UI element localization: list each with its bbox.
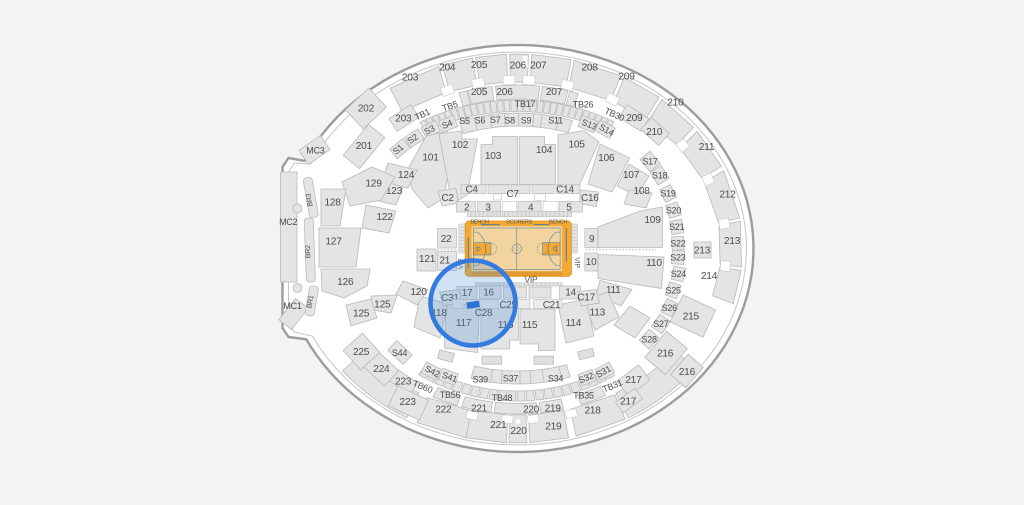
svg-text:S26: S26 <box>662 303 678 313</box>
svg-text:122: 122 <box>376 212 393 223</box>
svg-text:S24: S24 <box>671 269 687 279</box>
svg-text:207: 207 <box>546 87 563 98</box>
svg-text:14: 14 <box>565 287 576 298</box>
svg-text:TB35: TB35 <box>573 391 594 401</box>
svg-text:114: 114 <box>566 318 582 329</box>
svg-text:129: 129 <box>365 178 382 189</box>
svg-text:212: 212 <box>719 190 736 201</box>
svg-text:225: 225 <box>353 347 370 358</box>
svg-text:102: 102 <box>452 140 469 151</box>
svg-text:C21: C21 <box>543 300 561 311</box>
svg-text:S25: S25 <box>665 285 681 295</box>
svg-text:205: 205 <box>471 60 488 71</box>
svg-text:211: 211 <box>699 142 715 153</box>
svg-text:S17: S17 <box>642 157 658 167</box>
svg-text:S23: S23 <box>670 253 686 263</box>
svg-text:224: 224 <box>373 364 390 375</box>
svg-text:VIP: VIP <box>573 257 580 268</box>
svg-text:208: 208 <box>581 63 598 74</box>
svg-text:TB48: TB48 <box>492 393 513 403</box>
svg-text:110: 110 <box>646 258 662 269</box>
svg-text:217: 217 <box>620 396 637 407</box>
svg-text:108: 108 <box>633 186 650 197</box>
svg-text:C7: C7 <box>506 189 519 200</box>
svg-text:BENCH: BENCH <box>549 219 568 225</box>
svg-text:S7: S7 <box>490 115 501 125</box>
svg-text:S6: S6 <box>475 116 486 126</box>
svg-text:S19: S19 <box>660 189 676 199</box>
svg-text:S37: S37 <box>503 374 519 384</box>
svg-text:C4: C4 <box>465 184 478 195</box>
svg-text:MC2: MC2 <box>279 217 297 227</box>
svg-text:210: 210 <box>646 127 663 138</box>
svg-text:203: 203 <box>395 113 412 124</box>
svg-text:210: 210 <box>667 98 684 109</box>
svg-text:206: 206 <box>496 87 513 98</box>
svg-text:SCORERS: SCORERS <box>506 219 532 225</box>
svg-text:S8: S8 <box>504 116 515 126</box>
svg-text:109: 109 <box>644 215 661 226</box>
svg-text:115: 115 <box>522 320 538 331</box>
svg-text:S28: S28 <box>641 334 657 344</box>
svg-text:125: 125 <box>353 309 370 320</box>
svg-text:202: 202 <box>358 103 375 114</box>
svg-text:103: 103 <box>485 151 502 162</box>
svg-text:S21: S21 <box>669 222 685 232</box>
svg-text:S22: S22 <box>670 239 686 249</box>
svg-text:10: 10 <box>586 257 597 268</box>
svg-text:125: 125 <box>374 299 391 310</box>
svg-text:C14: C14 <box>556 184 574 195</box>
svg-text:S11: S11 <box>548 116 563 126</box>
svg-text:S39: S39 <box>473 375 489 385</box>
svg-text:220: 220 <box>510 426 527 437</box>
svg-text:TB17: TB17 <box>515 99 536 109</box>
svg-text:S27: S27 <box>653 319 669 329</box>
svg-text:TB26: TB26 <box>573 99 594 109</box>
svg-text:121: 121 <box>419 254 436 265</box>
svg-text:9: 9 <box>589 234 595 245</box>
svg-text:204: 204 <box>439 63 456 74</box>
svg-text:216: 216 <box>657 349 674 360</box>
svg-text:201: 201 <box>356 141 373 152</box>
svg-text:209: 209 <box>618 72 635 83</box>
svg-text:101: 101 <box>422 153 439 164</box>
svg-text:126: 126 <box>337 277 354 288</box>
svg-text:C2: C2 <box>441 193 454 204</box>
svg-text:128: 128 <box>324 197 341 208</box>
svg-text:127: 127 <box>325 236 342 247</box>
svg-text:220: 220 <box>523 404 540 415</box>
svg-text:C16: C16 <box>581 193 599 204</box>
svg-text:221: 221 <box>490 420 507 431</box>
svg-text:S18: S18 <box>652 170 668 180</box>
svg-text:BENCH: BENCH <box>470 219 489 225</box>
svg-text:209: 209 <box>626 113 643 124</box>
svg-text:207: 207 <box>530 61 547 72</box>
svg-text:TB56: TB56 <box>440 390 461 400</box>
svg-text:107: 107 <box>623 170 640 181</box>
svg-text:213: 213 <box>724 236 741 247</box>
svg-text:215: 215 <box>683 311 700 322</box>
svg-text:S20: S20 <box>666 205 682 215</box>
svg-text:BR2: BR2 <box>305 245 312 258</box>
svg-text:S44: S44 <box>392 348 408 358</box>
svg-text:105: 105 <box>568 140 585 151</box>
svg-text:214: 214 <box>701 271 718 282</box>
svg-text:223: 223 <box>399 397 416 408</box>
svg-text:218: 218 <box>585 405 602 416</box>
svg-text:219: 219 <box>545 422 562 433</box>
svg-text:221: 221 <box>471 404 488 415</box>
svg-text:S34: S34 <box>548 374 564 384</box>
svg-text:222: 222 <box>435 404 452 415</box>
svg-text:113: 113 <box>590 307 606 318</box>
svg-text:104: 104 <box>536 145 553 156</box>
svg-text:217: 217 <box>625 375 642 386</box>
svg-text:216: 216 <box>679 367 696 378</box>
svg-text:213: 213 <box>694 245 711 256</box>
svg-text:C17: C17 <box>577 293 595 304</box>
svg-text:MC3: MC3 <box>306 145 324 155</box>
svg-text:203: 203 <box>402 73 419 84</box>
svg-text:124: 124 <box>398 170 415 181</box>
svg-text:MC1: MC1 <box>283 301 301 311</box>
svg-text:S5: S5 <box>459 116 470 126</box>
svg-text:21: 21 <box>439 256 450 267</box>
svg-text:S9: S9 <box>521 116 532 126</box>
svg-text:106: 106 <box>598 153 615 164</box>
svg-text:219: 219 <box>545 404 562 415</box>
svg-text:120: 120 <box>410 287 427 298</box>
svg-text:22: 22 <box>441 234 452 245</box>
svg-text:206: 206 <box>510 61 527 72</box>
